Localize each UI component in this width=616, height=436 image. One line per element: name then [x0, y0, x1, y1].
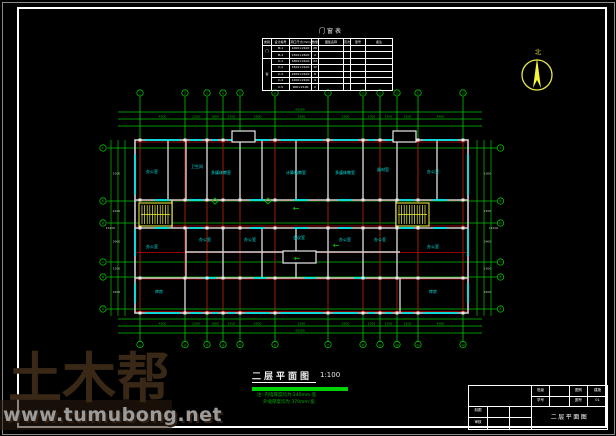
axis-letter: F	[500, 146, 502, 150]
column-marker	[222, 227, 225, 230]
axis-number: 9	[379, 343, 381, 347]
room-label: 器材室	[377, 166, 389, 172]
column-marker	[417, 277, 420, 280]
axis-letter: A	[102, 307, 105, 311]
dim-text: 2200	[192, 115, 200, 119]
direction-arrow-icon: ←	[294, 254, 301, 263]
canopy	[232, 131, 255, 142]
column-marker	[379, 139, 382, 142]
dim-text: 3500	[254, 115, 262, 119]
tb-divider	[469, 417, 531, 418]
axis-number: 12	[461, 343, 465, 347]
schedule-table: 类别设计编号洞口尺寸(mm)数量图集名称页次型号备注门M-11000×21002…	[262, 38, 393, 91]
column-marker	[206, 199, 209, 202]
schedule-header: 型号	[351, 39, 366, 46]
column-marker	[206, 312, 209, 315]
dim-text: 4500	[159, 322, 167, 326]
column-marker	[206, 277, 209, 280]
column-marker	[327, 312, 330, 315]
column-marker	[417, 312, 420, 315]
column-marker	[362, 227, 365, 230]
column-marker	[139, 312, 142, 315]
compass-needle-icon	[533, 58, 541, 88]
room-label: 办公室	[427, 243, 439, 249]
dim-text: 1700	[368, 322, 376, 326]
column-marker	[362, 199, 365, 202]
room-label: 库房	[429, 288, 437, 294]
column-marker	[184, 227, 187, 230]
dim-text: 1700	[228, 322, 236, 326]
axis-number: 11	[416, 91, 420, 95]
axis-number: 4	[222, 91, 224, 95]
schedule-cell: C-5	[272, 84, 290, 90]
schedule-header: 洞口尺寸(mm)	[290, 39, 312, 46]
dim-text: 3900	[113, 240, 121, 244]
axis-number: 6	[274, 91, 276, 95]
column-marker	[379, 199, 382, 202]
axis-letter: C	[102, 260, 104, 264]
column-marker	[362, 139, 365, 142]
room-label: 办公室	[146, 243, 158, 249]
room-label: 办公室	[244, 236, 256, 242]
title-block: 班级 图别 建施 学号 图号 01 制图 审核 二层平面图	[468, 385, 608, 430]
dim-text: 2100	[404, 115, 412, 119]
axis-number: 5	[239, 91, 241, 95]
north-compass-icon	[515, 52, 561, 98]
dim-text: 4500	[437, 115, 445, 119]
column-marker	[184, 199, 187, 202]
schedule-header: 备注	[366, 39, 393, 46]
axis-number: 2	[184, 91, 186, 95]
dim-text: 2100	[404, 322, 412, 326]
room-label: 多媒体教室	[211, 169, 231, 175]
axis-number: 7	[327, 343, 329, 347]
axis-letter: D	[102, 221, 105, 225]
axis-number: 1	[139, 91, 141, 95]
column-marker	[462, 312, 465, 315]
schedule-group-label: 门	[263, 46, 272, 59]
column-marker	[417, 139, 420, 142]
column-marker	[379, 312, 382, 315]
tb-sheetno-label: 图号	[570, 399, 587, 403]
dim-text: 2200	[484, 209, 492, 213]
column-marker	[222, 199, 225, 202]
axis-letter: F	[102, 146, 104, 150]
schedule-cell	[351, 84, 366, 90]
dim-text: 5300	[298, 115, 306, 119]
column-marker	[239, 227, 242, 230]
room-label: 多媒体教室	[335, 169, 355, 175]
column-marker	[222, 277, 225, 280]
column-marker	[239, 277, 242, 280]
schedule-cell	[366, 84, 393, 90]
column-marker	[327, 227, 330, 230]
column-marker	[396, 312, 399, 315]
tb-divider	[509, 406, 510, 429]
dim-text: 1500	[113, 267, 121, 271]
note-line-2: 外墙厚度均为 370mm 宽.	[263, 401, 316, 406]
room-label: 卫生间	[191, 163, 203, 169]
axis-number: 12	[461, 91, 465, 95]
schedule-header: 页次	[344, 39, 351, 46]
dim-text: 1600	[211, 115, 219, 119]
schedule-cell: 900×2100	[290, 84, 312, 90]
dim-text: 3900	[484, 240, 492, 244]
column-marker	[462, 199, 465, 202]
column-marker	[239, 199, 242, 202]
axis-letter: D	[499, 221, 502, 225]
dim-text: 1600	[211, 322, 219, 326]
column-marker	[274, 277, 277, 280]
dim-text: 3200	[484, 290, 492, 294]
axis-number: 8	[362, 343, 364, 347]
column-marker	[239, 312, 242, 315]
axis-number: 8	[362, 91, 364, 95]
axis-number: 11	[416, 343, 420, 347]
dim-text: 1700	[228, 115, 236, 119]
door-window-schedule: 类别设计编号洞口尺寸(mm)数量图集名称页次型号备注门M-11000×21002…	[262, 38, 393, 91]
tb-category-value: 建施	[588, 389, 607, 393]
note-line-1: 注: 内墙厚度均为 240mm 宽.	[257, 394, 318, 399]
axis-letter: B	[499, 275, 501, 279]
dim-text: 3500	[342, 115, 350, 119]
room-label: 办公室	[427, 168, 439, 174]
column-marker	[417, 199, 420, 202]
dim-total: 16100	[106, 226, 116, 230]
schedule-header: 设计编号	[272, 39, 290, 46]
axis-number: 6	[274, 343, 276, 347]
column-marker	[139, 277, 142, 280]
column-marker	[327, 277, 330, 280]
direction-arrow-icon: ←	[293, 204, 300, 213]
dim-text: 4500	[437, 322, 445, 326]
axis-number: 5	[239, 343, 241, 347]
dim-text: 2200	[192, 322, 200, 326]
tb-divider	[487, 406, 488, 429]
axis-letter: B	[102, 275, 104, 279]
dim-total: 16100	[489, 226, 499, 230]
room-label: 办公室	[146, 168, 158, 174]
watermark-brand: 土木帮	[8, 352, 170, 406]
dim-text: 5300	[113, 172, 121, 176]
axis-number: 9	[379, 91, 381, 95]
schedule-header: 数量	[312, 39, 319, 46]
schedule-header: 图集名称	[319, 39, 344, 46]
dim-text: 4500	[159, 115, 167, 119]
column-marker	[396, 277, 399, 280]
axis-number: 10	[395, 91, 399, 95]
dim-text: 3500	[254, 322, 262, 326]
axis-letter: E	[500, 199, 502, 203]
room-label: 计算机教室	[286, 169, 306, 175]
dim-text: 1700	[385, 115, 393, 119]
axis-number: 7	[327, 91, 329, 95]
schedule-cell: 2	[312, 84, 319, 90]
scale-bar	[252, 387, 348, 391]
tb-category-label: 图别	[570, 389, 587, 393]
dim-total: 43200	[295, 108, 305, 112]
column-marker	[462, 227, 465, 230]
column-marker	[206, 227, 209, 230]
tb-checker-label: 审核	[469, 421, 487, 425]
tb-sheetno-value: 01	[588, 399, 607, 403]
column-marker	[327, 199, 330, 202]
dim-text: 1700	[385, 322, 393, 326]
schedule-cell	[344, 84, 351, 90]
dim-text: 5300	[484, 172, 492, 176]
tb-drawing-name: 二层平面图	[532, 407, 607, 429]
column-marker	[396, 227, 399, 230]
column-marker	[184, 312, 187, 315]
title-underline	[252, 382, 316, 383]
column-marker	[327, 139, 330, 142]
room-label: 办公室	[374, 236, 386, 242]
column-marker	[379, 227, 382, 230]
axis-number: 3	[206, 343, 208, 347]
watermark-url: www.tumubong.net	[3, 404, 222, 426]
column-marker	[362, 277, 365, 280]
column-marker	[274, 199, 277, 202]
dim-text: 3200	[113, 290, 121, 294]
cad-drawing-canvas: 4500450022002200160016001700170035003500…	[0, 0, 616, 436]
room-label: 会议室	[293, 234, 305, 240]
schedule-title: 门窗表	[286, 26, 376, 35]
room-label: 办公室	[199, 236, 211, 242]
column-marker	[274, 227, 277, 230]
room-label: 办公室	[339, 236, 351, 242]
dim-text: 2200	[113, 209, 121, 213]
dim-total: 43200	[295, 329, 305, 333]
column-marker	[396, 199, 399, 202]
drawing-scale: 1:100	[320, 371, 340, 379]
tb-divider	[549, 386, 550, 406]
column-marker	[274, 312, 277, 315]
axis-number: 10	[395, 343, 399, 347]
column-marker	[184, 139, 187, 142]
room-label: 库房	[155, 288, 163, 294]
canopy	[393, 131, 416, 142]
axis-letter: C	[499, 260, 501, 264]
drawing-title: 二层平面图	[252, 369, 312, 382]
dim-text: 1500	[484, 267, 492, 271]
axis-letter: A	[499, 307, 502, 311]
dim-text: 3500	[342, 322, 350, 326]
axis-letter: E	[102, 199, 104, 203]
column-marker	[379, 277, 382, 280]
column-marker	[184, 277, 187, 280]
column-marker	[139, 139, 142, 142]
axis-number: 2	[184, 343, 186, 347]
column-marker	[206, 139, 209, 142]
schedule-cell	[319, 84, 344, 90]
axis-number: 4	[222, 343, 224, 347]
column-marker	[139, 199, 142, 202]
dim-text: 1700	[368, 115, 376, 119]
tb-studentno-label: 学号	[532, 399, 549, 403]
tb-drafter-label: 制图	[469, 409, 487, 413]
direction-arrow-icon: ←	[333, 241, 340, 250]
schedule-group-label: 窗	[263, 58, 272, 90]
column-marker	[462, 277, 465, 280]
column-marker	[139, 227, 142, 230]
column-marker	[274, 139, 277, 142]
column-marker	[222, 139, 225, 142]
axis-number: 3	[206, 91, 208, 95]
tb-class-label: 班级	[532, 389, 549, 393]
column-marker	[222, 312, 225, 315]
dim-text: 5300	[298, 322, 306, 326]
column-marker	[462, 139, 465, 142]
column-marker	[362, 312, 365, 315]
column-marker	[417, 227, 420, 230]
schedule-header: 类别	[263, 39, 272, 46]
